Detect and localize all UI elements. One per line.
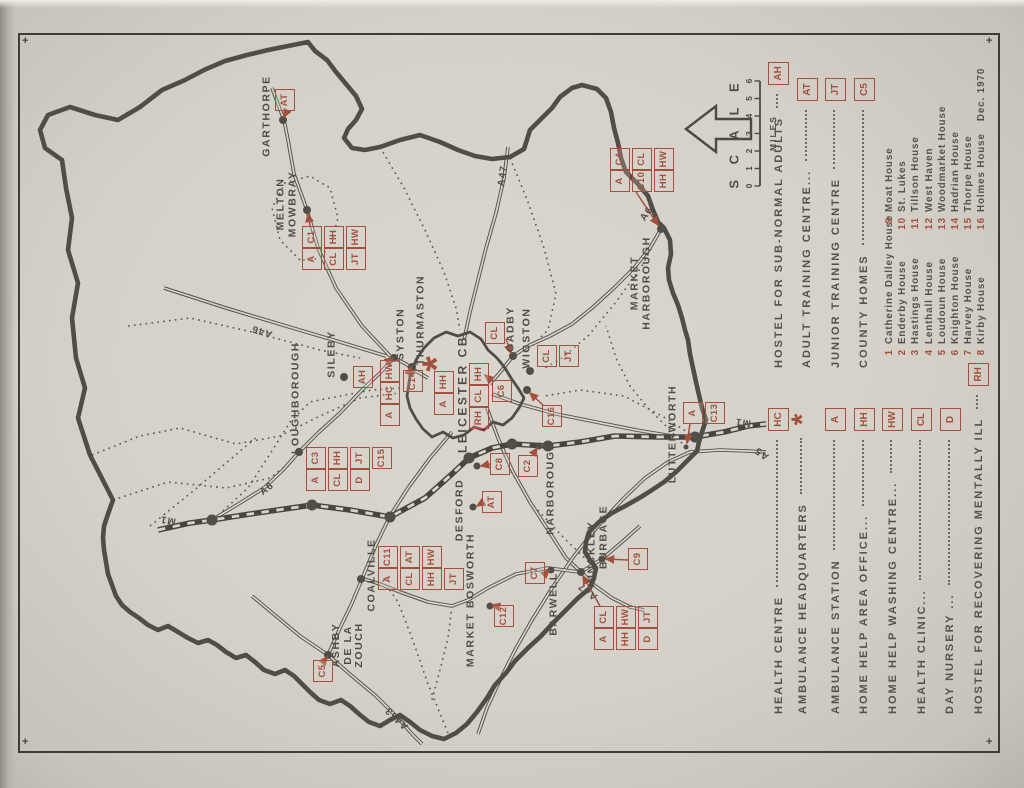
county-home-item: 1Catherine Dalley House bbox=[884, 215, 895, 364]
junction-dot bbox=[207, 515, 218, 526]
town-label: BURBAGE bbox=[598, 505, 610, 569]
asterisk-symbol: * bbox=[799, 408, 807, 429]
legend-label: JUNIOR TRAINING CENTRE bbox=[830, 178, 842, 368]
town-label: MELTONMOWBRAY bbox=[276, 171, 299, 238]
facility-code-box: A bbox=[306, 469, 326, 491]
county-home-number: 3 bbox=[910, 349, 921, 364]
leader-arrow bbox=[530, 393, 543, 405]
county-home-name: Holmes House bbox=[976, 133, 987, 212]
facility-code-box: JT bbox=[559, 345, 579, 367]
legend-row: AMBULANCE STATIONA bbox=[825, 408, 846, 714]
town-label-line: HARBOROUGH bbox=[641, 236, 653, 330]
town-label: MARKETHARBOROUGH bbox=[630, 236, 653, 330]
facility-box-group: AH bbox=[353, 368, 373, 388]
legend-label: ADULT TRAINING CENTRE... bbox=[801, 170, 813, 368]
facility-code-box: AH bbox=[353, 366, 373, 388]
facility-box-group: C14 bbox=[403, 372, 423, 392]
facility-code-box: CL bbox=[632, 148, 652, 170]
road-inner bbox=[478, 450, 766, 734]
legend-dotted-leader bbox=[776, 94, 778, 108]
legend-code-box: AH bbox=[768, 62, 789, 85]
town-label: BARWELL bbox=[548, 572, 560, 636]
town-label: GARTHORPE bbox=[261, 75, 273, 157]
town-label-line: COALVILLE bbox=[366, 538, 378, 611]
town-dot bbox=[474, 463, 481, 470]
town-label: ASHBYDE LAZOUCH bbox=[331, 622, 366, 667]
legend-code-box: A bbox=[825, 408, 846, 431]
county-home-number: 4 bbox=[924, 349, 935, 364]
facility-code-box: HW bbox=[380, 360, 400, 382]
town-label: NARBOROUGH bbox=[545, 441, 557, 535]
legend-label: AMBULANCE HEADQUARTERS bbox=[797, 503, 809, 714]
town-label-line: WIGSTON bbox=[521, 307, 533, 368]
ambulance-hq-asterisk: * bbox=[427, 356, 447, 372]
town-label-line: ZOUCH bbox=[354, 622, 366, 667]
county-home-name: Hastings House bbox=[910, 257, 921, 344]
facility-code-box: RH bbox=[469, 407, 489, 429]
facility-code-box: HH bbox=[324, 226, 344, 248]
town-label: HINCKLEY bbox=[586, 521, 598, 587]
town-label-line: MOWBRAY bbox=[287, 171, 299, 238]
facility-code-box: C7 bbox=[525, 562, 545, 584]
town-label-line: MARKET BOSWORTH bbox=[465, 533, 477, 667]
facility-box-group: C7 bbox=[525, 564, 545, 584]
legend-dotted-leader bbox=[919, 440, 921, 580]
facility-code-box: A bbox=[594, 628, 614, 650]
legend-code-box: D bbox=[940, 408, 961, 431]
town-label-line: OADBY bbox=[505, 306, 517, 352]
legend-row: AMBULANCE HEADQUARTERS* bbox=[797, 408, 809, 714]
junction-dot bbox=[307, 500, 318, 511]
legend-code-box: CL bbox=[911, 408, 932, 431]
legend-row: COUNTY HOMESC5 bbox=[854, 78, 875, 368]
facility-code-box: CL bbox=[537, 345, 557, 367]
facility-code-box: AT bbox=[482, 491, 502, 513]
facility-code-box: CL bbox=[324, 248, 344, 270]
facility-box-group: ACLHHHWDJT bbox=[594, 608, 658, 650]
town-label: WIGSTON bbox=[521, 307, 533, 368]
county-home-name: West Haven bbox=[924, 148, 935, 212]
facility-code-box: C8 bbox=[490, 453, 510, 475]
county-home-item: 12West Haven bbox=[924, 148, 935, 232]
facility-code-box: A bbox=[380, 404, 400, 426]
facility-box-group: AHCHW bbox=[380, 362, 400, 426]
town-label: LOUGHBOROUGH bbox=[290, 342, 302, 454]
county-home-number: 1 bbox=[884, 349, 895, 364]
county-home-number: 6 bbox=[950, 349, 961, 364]
legend-label: AMBULANCE STATION bbox=[830, 559, 842, 714]
county-home-number: 15 bbox=[963, 217, 974, 232]
facility-code-box: C2 bbox=[518, 455, 538, 477]
facility-code-box: C10 bbox=[632, 170, 652, 192]
legend-label: DAY NURSERY ... bbox=[944, 594, 956, 714]
town-label-line: BARWELL bbox=[548, 572, 560, 636]
county-home-name: Catherine Dalley House bbox=[884, 215, 895, 344]
town-dot bbox=[487, 603, 494, 610]
town-label-line: THURMASTON bbox=[415, 275, 427, 365]
county-home-item: 9Moat House bbox=[884, 147, 895, 232]
legend-dotted-leader bbox=[862, 110, 864, 245]
legend-dotted-leader bbox=[800, 438, 802, 494]
legend-code-box: HH bbox=[854, 408, 875, 431]
town-label-line: SYSTON bbox=[395, 308, 407, 361]
legend-row: HEALTH CLINIC...CL bbox=[911, 408, 932, 714]
facility-box-group: AC13 bbox=[683, 404, 725, 424]
facility-code-box: C9 bbox=[628, 548, 648, 570]
facility-code-box: A bbox=[610, 170, 630, 192]
county-home-item: 10St. Lukes bbox=[897, 160, 908, 232]
county-home-item: 7Harvey House bbox=[963, 268, 974, 364]
facility-code-box: C11 bbox=[378, 546, 398, 568]
legend-dotted-leader bbox=[776, 440, 778, 587]
county-home-item: 11Tillson House bbox=[910, 136, 921, 232]
town-label: COALVILLE bbox=[366, 538, 378, 611]
legend-code-box: HW bbox=[882, 408, 903, 431]
facility-code-box: HH bbox=[328, 447, 348, 469]
junction-dot bbox=[385, 512, 396, 523]
facility-code-box: AT bbox=[275, 89, 295, 111]
county-home-name: Enderby House bbox=[897, 260, 908, 344]
scale-tick-number: 6 bbox=[744, 79, 754, 84]
county-home-name: Kirby House bbox=[976, 276, 987, 344]
facility-code-box: C15 bbox=[372, 447, 392, 469]
facility-box-group: C6 bbox=[492, 382, 512, 402]
facility-code-box: C3 bbox=[306, 447, 326, 469]
legend-row: HOME HELP AREA OFFICE...HH bbox=[854, 408, 875, 714]
town-label-line: LUTTERWORTH bbox=[667, 385, 679, 483]
facility-code-box: HC bbox=[380, 382, 400, 404]
facility-code-box: CL bbox=[469, 385, 489, 407]
county-home-item: 16Holmes HouseDec. 1970 bbox=[976, 68, 987, 232]
county-home-number: 14 bbox=[950, 217, 961, 232]
facility-code-box: JT bbox=[638, 606, 658, 628]
county-home-number: 10 bbox=[897, 217, 908, 232]
legend-row: HOME HELP WASHING CENTRE...HW bbox=[882, 408, 903, 714]
legend-code-box: AT bbox=[797, 78, 818, 101]
facility-box-group: C9 bbox=[628, 550, 648, 570]
scale-tick-number: 1 bbox=[744, 166, 754, 171]
facility-code-box: CL bbox=[594, 606, 614, 628]
county-home-name: Thorpe House bbox=[963, 135, 974, 212]
facility-code-box: HH bbox=[434, 371, 454, 393]
town-label-line: HINCKLEY bbox=[586, 521, 598, 587]
county-home-name: Knighton House bbox=[950, 256, 961, 344]
town-dot bbox=[657, 225, 665, 233]
county-home-number: 7 bbox=[963, 349, 974, 364]
facility-code-box: C12 bbox=[494, 605, 514, 627]
facility-box-group: C5 bbox=[313, 662, 333, 682]
town-label-line: SILEBY bbox=[326, 330, 338, 378]
road bbox=[478, 450, 766, 734]
district-boundary-dotted bbox=[510, 158, 556, 346]
facility-code-box: A bbox=[378, 568, 398, 590]
legend-dotted-leader bbox=[805, 110, 807, 161]
county-home-number: 2 bbox=[897, 349, 908, 364]
legend-label: HOME HELP WASHING CENTRE... bbox=[887, 482, 899, 714]
county-home-item: 3Hastings House bbox=[910, 257, 921, 364]
legend-row: ADULT TRAINING CENTRE...AT bbox=[797, 78, 818, 368]
leader-arrow bbox=[284, 111, 287, 117]
county-home-name: Hadrian House bbox=[950, 131, 961, 212]
county-home-number: 5 bbox=[937, 349, 948, 364]
facility-code-box: JT bbox=[350, 447, 370, 469]
road-label: M1 bbox=[734, 415, 751, 428]
town-label: SYSTON bbox=[395, 308, 407, 361]
facility-code-box: D bbox=[350, 469, 370, 491]
county-home-name: Loudoun House bbox=[937, 258, 948, 344]
facility-box-group: RHCLHH bbox=[469, 365, 489, 429]
county-home-number: 8 bbox=[976, 349, 987, 364]
town-label-line: BURBAGE bbox=[598, 505, 610, 569]
facility-code-box: HH bbox=[469, 363, 489, 385]
legend-label: COUNTY HOMES bbox=[858, 254, 870, 368]
facility-code-box: A bbox=[683, 402, 703, 424]
county-home-item: 5Loudoun House bbox=[937, 258, 948, 364]
facility-box-group: AT bbox=[482, 493, 502, 513]
town-dot bbox=[303, 206, 311, 214]
legend-label: HOSTEL FOR SUB-NORMAL ADULTS bbox=[773, 117, 785, 368]
county-home-item: 4Lenthall House bbox=[924, 261, 935, 364]
facility-code-box: C4 bbox=[610, 148, 630, 170]
facility-box-group: C2 bbox=[518, 457, 538, 477]
town-label-line: MARKET bbox=[630, 236, 642, 330]
facility-box-group: AC11CLATHHHWJT bbox=[378, 548, 464, 590]
facility-code-box: HW bbox=[654, 148, 674, 170]
town-label: SILEBY bbox=[326, 330, 338, 378]
facility-box-group: AC1CLHHJTHW bbox=[302, 228, 366, 270]
county-home-item: 14Hadrian House bbox=[950, 131, 961, 232]
scale-tick-number: 5 bbox=[744, 96, 754, 101]
facility-code-box: C1 bbox=[302, 226, 322, 248]
scale-tick-number: 2 bbox=[744, 149, 754, 154]
legend-row: HOSTEL FOR RECOVERING MENTALLY ILLRH bbox=[968, 408, 989, 714]
town-label: MARKET BOSWORTH bbox=[465, 533, 477, 667]
county-home-name: Tillson House bbox=[910, 136, 921, 212]
road-inner bbox=[164, 288, 386, 356]
facility-code-box: AT bbox=[400, 546, 420, 568]
leader-arrow bbox=[481, 464, 490, 466]
facility-code-box: A bbox=[302, 248, 322, 270]
facility-box-group: AC3CLHHDJTC15 bbox=[306, 449, 392, 491]
facility-code-box: CL bbox=[328, 469, 348, 491]
legend-label: HOME HELP AREA OFFICE... bbox=[858, 515, 870, 714]
facility-code-box: HW bbox=[346, 226, 366, 248]
legend-row: HOSTEL FOR SUB-NORMAL ADULTSAH bbox=[768, 78, 789, 368]
legend-code-box: RH bbox=[968, 363, 989, 386]
county-home-name: Moat House bbox=[884, 147, 895, 212]
town-label: THURMASTON bbox=[415, 275, 427, 365]
scale-title: S C A L E bbox=[727, 77, 742, 188]
facility-box-group: AC4C10CLHHHW bbox=[610, 150, 674, 192]
town-dot bbox=[357, 575, 365, 583]
town-label: LEICESTER CB bbox=[457, 335, 469, 453]
legend-date: Dec. 1970 bbox=[976, 68, 987, 121]
facility-code-box: C13 bbox=[705, 402, 725, 424]
town-dot bbox=[279, 116, 287, 124]
county-home-number: 9 bbox=[884, 217, 895, 232]
facility-box-group: CL bbox=[485, 324, 505, 344]
legend-label: HOSTEL FOR RECOVERING MENTALLY ILL bbox=[973, 418, 985, 714]
legend-dotted-leader bbox=[833, 440, 835, 550]
facility-box-group: CLJT bbox=[537, 347, 579, 367]
facility-code-box: D bbox=[638, 628, 658, 650]
legend-code-box: C5 bbox=[854, 78, 875, 101]
junction-dot bbox=[507, 439, 518, 450]
facility-box-group: C12 bbox=[494, 607, 514, 627]
facility-code-box: HW bbox=[616, 606, 636, 628]
scale-tick-number: 4 bbox=[744, 114, 754, 119]
scale-tick-number: 3 bbox=[744, 131, 754, 136]
facility-code-box: C5 bbox=[313, 660, 333, 682]
facility-code-box: HH bbox=[616, 628, 636, 650]
county-home-name: Woodmarket House bbox=[937, 106, 948, 212]
rotated-map-surface: GARTHORPEATMELTONMOWBRAYAC1CLHHJTHWSILEB… bbox=[0, 0, 1024, 788]
facility-code-box: C16 bbox=[542, 405, 562, 427]
county-home-number: 13 bbox=[937, 217, 948, 232]
facility-code-box: JT bbox=[444, 568, 464, 590]
junction-dot bbox=[464, 453, 475, 464]
county-home-item: 2Enderby House bbox=[897, 260, 908, 364]
scanned-map-photo: { "title_note": "Leicestershire health s… bbox=[0, 0, 1024, 788]
facility-code-box: CL bbox=[400, 568, 420, 590]
county-home-item: 15Thorpe House bbox=[963, 135, 974, 232]
district-boundary-dotted bbox=[432, 606, 452, 700]
town-label-line: LEICESTER CB bbox=[457, 335, 469, 453]
legend-dotted-leader bbox=[833, 110, 835, 169]
town-label-line: LOUGHBOROUGH bbox=[290, 342, 302, 454]
legend-code-box: JT bbox=[825, 78, 846, 101]
legend-row: DAY NURSERY ...D bbox=[940, 408, 961, 714]
legend-row: HEALTH CENTREHC bbox=[768, 408, 789, 714]
legend-dotted-leader bbox=[862, 440, 864, 506]
facility-code-box: C6 bbox=[492, 380, 512, 402]
legend-label: HEALTH CENTRE bbox=[773, 596, 785, 714]
town-dot bbox=[523, 386, 531, 394]
town-dot bbox=[577, 568, 585, 576]
legend-dotted-leader bbox=[976, 395, 978, 409]
county-home-number: 12 bbox=[924, 217, 935, 232]
facility-box-group: AT bbox=[275, 91, 295, 111]
county-home-name: St. Lukes bbox=[897, 160, 908, 212]
town-label: DESFORD bbox=[454, 479, 466, 542]
facility-code-box: HH bbox=[422, 568, 442, 590]
facility-code-box: HW bbox=[422, 546, 442, 568]
town-label: OADBY bbox=[505, 306, 517, 352]
town-dot bbox=[684, 445, 689, 450]
town-dot bbox=[340, 373, 348, 381]
facility-code-box: CL bbox=[485, 322, 505, 344]
legend-row: JUNIOR TRAINING CENTREJT bbox=[825, 78, 846, 368]
county-home-number: 11 bbox=[910, 217, 921, 232]
facility-box-group: C8 bbox=[490, 455, 510, 475]
town-label-line: GARTHORPE bbox=[261, 75, 273, 157]
facility-box-group: AHH bbox=[434, 373, 454, 415]
legend-dotted-leader bbox=[890, 440, 892, 473]
facility-box-group: C16 bbox=[542, 407, 562, 427]
county-home-item: 8Kirby House bbox=[976, 276, 987, 364]
town-label-line: DESFORD bbox=[454, 479, 466, 542]
town-dot bbox=[690, 432, 701, 443]
town-label-line: MELTON bbox=[276, 171, 288, 238]
facility-code-box: A bbox=[434, 393, 454, 415]
facility-code-box: HH bbox=[654, 170, 674, 192]
county-home-item: 6Knighton House bbox=[950, 256, 961, 364]
town-label: LUTTERWORTH bbox=[667, 385, 679, 483]
town-dot bbox=[509, 352, 517, 360]
county-home-name: Lenthall House bbox=[924, 261, 935, 344]
county-home-name: Harvey House bbox=[963, 268, 974, 344]
legend-label: HEALTH CLINIC... bbox=[916, 589, 928, 714]
legend-dotted-leader bbox=[948, 440, 950, 585]
facility-code-box: JT bbox=[346, 248, 366, 270]
scale-tick-number: 0 bbox=[744, 184, 754, 189]
facility-code-box: C14 bbox=[403, 370, 423, 392]
town-label-line: NARBOROUGH bbox=[545, 441, 557, 535]
county-home-number: 16 bbox=[976, 217, 987, 232]
county-home-item: 13Woodmarket House bbox=[937, 106, 948, 232]
town-dot bbox=[470, 504, 477, 511]
